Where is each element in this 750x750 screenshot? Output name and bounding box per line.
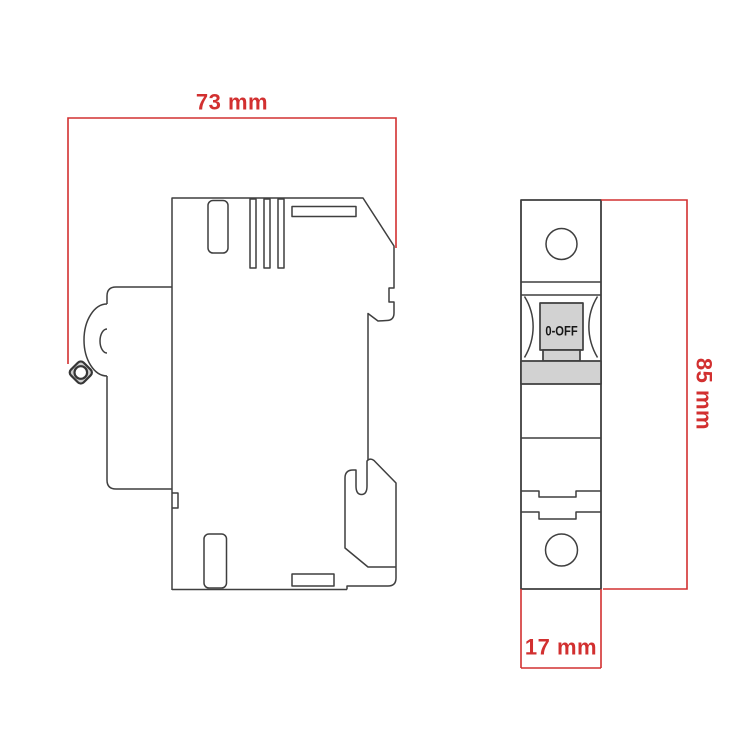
bottom-label-recess [292,574,334,586]
dimension-depth-label: 73 mm [196,90,268,115]
din-clip-flange [347,568,396,590]
side-view [68,198,396,590]
circuit-breaker-dimension-diagram: 0-OFF 73 mm 85 mm 17 mm [0,0,750,750]
front-body-outline [521,200,601,589]
din-rail-clip [345,459,396,567]
front-protrusion [107,287,172,489]
toggle-lever-label: 0-OFF [545,323,578,338]
dimension-height-label: 85 mm [691,358,716,430]
toggle-lever-base [543,350,580,361]
technical-drawing-page: 0-OFF 73 mm 85 mm 17 mm [0,0,750,750]
dimension-width-label: 17 mm [525,635,597,660]
front-view: 0-OFF [521,200,601,589]
dimension-width: 17 mm [521,589,601,668]
front-center-band [521,361,601,384]
dimension-height: 85 mm [601,200,716,589]
toggle-knob-screw [75,366,88,379]
toggle-pivot-arc-inner [100,329,107,353]
dimension-height-lines [601,200,687,589]
